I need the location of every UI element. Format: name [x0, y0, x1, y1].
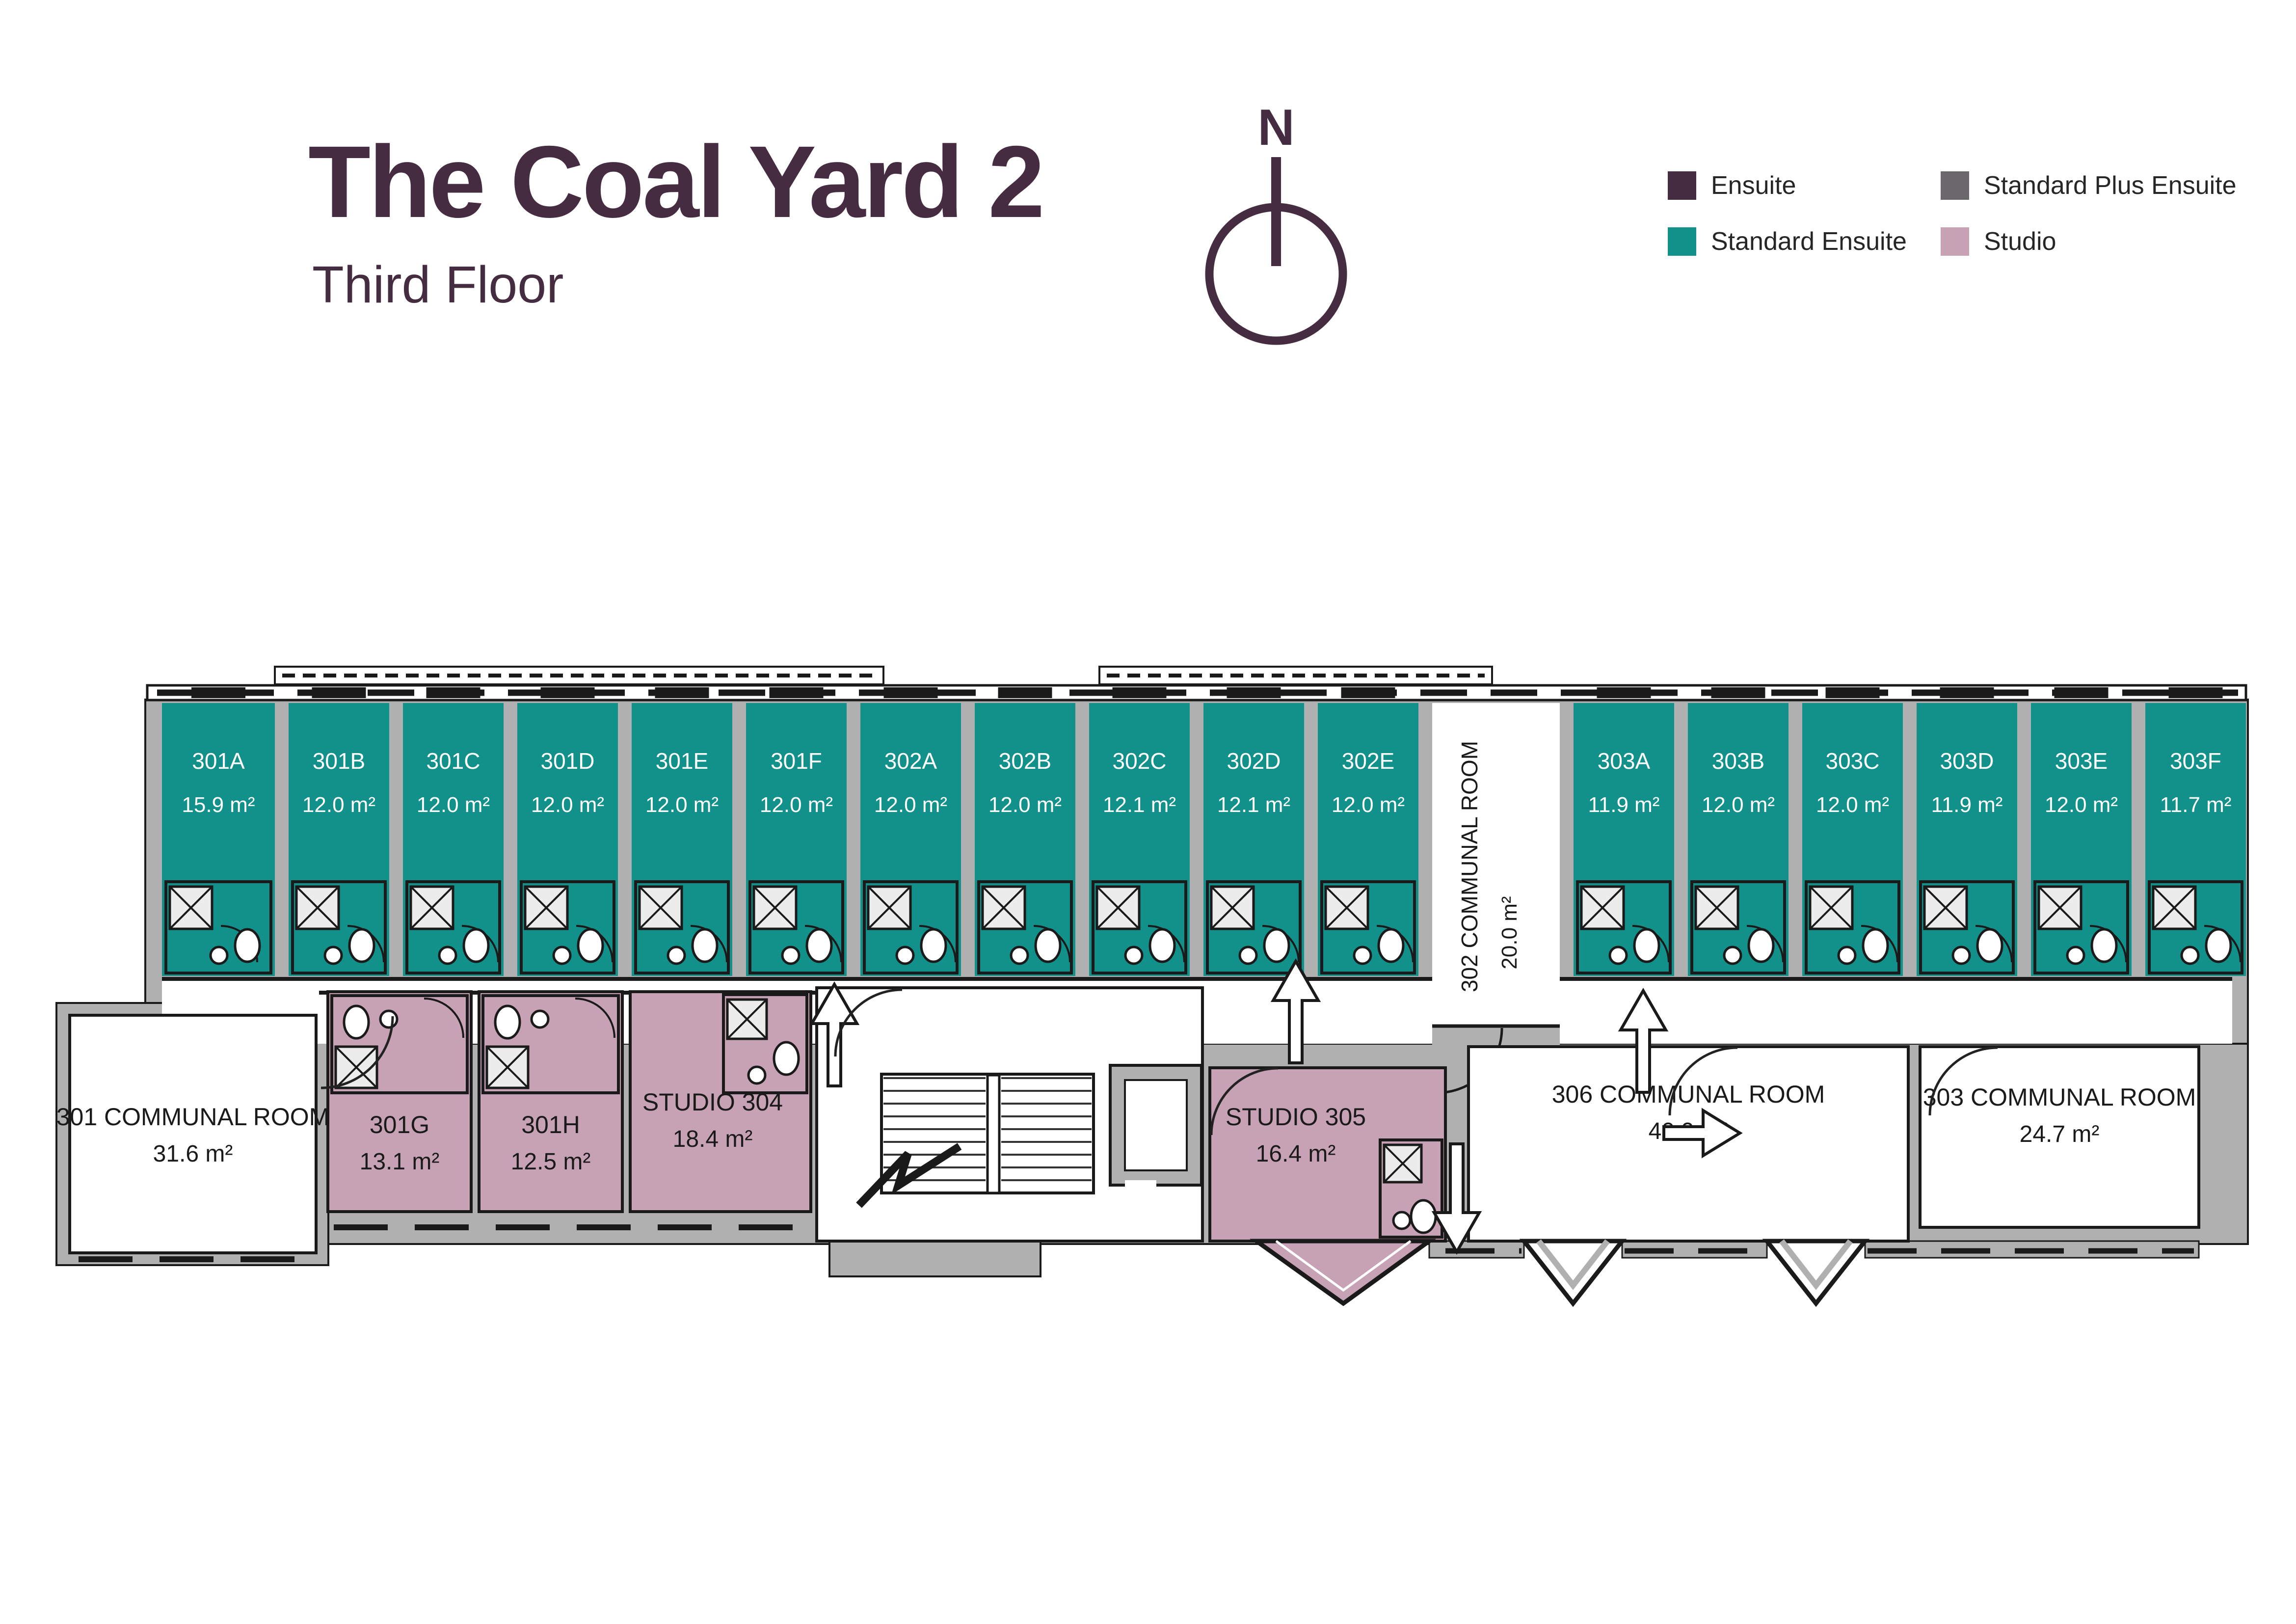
- room-fill: [746, 703, 847, 976]
- window-frame: [1341, 687, 1395, 698]
- room-302D: 302D12.1 m²: [1203, 687, 1304, 976]
- sink-icon: [554, 947, 570, 964]
- room-302E: 302E12.0 m²: [1318, 687, 1418, 976]
- room-id: 301G: [370, 1111, 429, 1138]
- room-fill: [1089, 703, 1190, 976]
- room-id: 302B: [999, 748, 1051, 774]
- room-fill: [1688, 703, 1789, 976]
- room-303F: 303F11.7 m²: [2145, 687, 2246, 976]
- window-frame: [427, 687, 481, 698]
- room-303A: 303A11.9 m²: [1574, 687, 1674, 976]
- room-id: 301D: [541, 748, 595, 774]
- room-area: 11.9 m²: [1588, 793, 1660, 817]
- room-id: 303D: [1940, 748, 1994, 774]
- room-id: 303C: [1826, 748, 1880, 774]
- legend-item-standard-plus-ensuite: Standard Plus Ensuite: [1941, 171, 2237, 200]
- sink-icon: [380, 1011, 397, 1028]
- room-id: 303F: [2170, 748, 2221, 774]
- legend-label: Ensuite: [1711, 171, 1796, 200]
- stair-rail: [988, 1075, 999, 1193]
- room-302B: 302B12.0 m²: [975, 687, 1075, 976]
- room-id: 301 COMMUNAL ROOM: [56, 1103, 330, 1131]
- room-area: 12.0 m²: [417, 793, 490, 817]
- window-frame: [1940, 687, 1994, 698]
- toilet-icon: [1977, 929, 2002, 962]
- room-area: 13.1 m²: [360, 1149, 440, 1175]
- toilet-icon: [235, 929, 260, 962]
- toilet-icon: [1379, 929, 1403, 962]
- room-area: 12.0 m²: [2045, 793, 2118, 817]
- toilet-icon: [495, 1006, 520, 1038]
- room-area: 12.0 m²: [645, 793, 719, 817]
- sink-icon: [439, 947, 456, 964]
- room-302C: 302C12.1 m²: [1089, 687, 1190, 976]
- room-301E: 301E12.0 m²: [632, 687, 732, 976]
- room-area: 12.0 m²: [1702, 793, 1775, 817]
- room-fill: [860, 703, 961, 976]
- studio-swatch-icon: [1941, 227, 1969, 256]
- room-id: 302E: [1342, 748, 1394, 774]
- window-frame: [1826, 687, 1880, 698]
- room-301A: 301A15.9 m²: [162, 687, 275, 976]
- room-id: 302 COMMUNAL ROOM: [1457, 741, 1482, 992]
- window-frame: [2055, 687, 2109, 698]
- room-fill: [1432, 703, 1560, 1026]
- legend-item-studio: Studio: [1941, 227, 2237, 256]
- room-fill: [1203, 703, 1304, 976]
- room-area: 12.1 m²: [1217, 793, 1290, 817]
- room-301B: 301B12.0 m²: [289, 687, 389, 976]
- legend-label: Standard Plus Ensuite: [1984, 171, 2237, 200]
- room-area: 12.0 m²: [1816, 793, 1889, 817]
- toilet-icon: [921, 929, 946, 962]
- sink-icon: [782, 947, 799, 964]
- window-frame: [1711, 687, 1765, 698]
- window-frame: [1227, 687, 1281, 698]
- room-id: 301C: [427, 748, 481, 774]
- room-area: 20.0 m²: [1497, 896, 1522, 969]
- sink-icon: [211, 947, 227, 964]
- room-fill: [2031, 703, 2132, 976]
- room-area: 24.7 m²: [2020, 1121, 2100, 1147]
- room-302-COMMUNAL-ROOM: 302 COMMUNAL ROOM20.0 m²: [1432, 703, 1560, 1093]
- room-area: 12.1 m²: [1103, 793, 1176, 817]
- toilet-icon: [349, 929, 374, 962]
- toilet-icon: [1264, 929, 1289, 962]
- toilet-icon: [2092, 929, 2116, 962]
- room-area: 12.0 m²: [988, 793, 1062, 817]
- room-area: 11.7 m²: [2160, 793, 2232, 817]
- toilet-icon: [1036, 929, 1060, 962]
- sink-icon: [1839, 947, 1855, 964]
- sink-icon: [532, 1011, 548, 1028]
- room-303-COMMUNAL-ROOM: 303 COMMUNAL ROOM24.7 m²: [1920, 1047, 2199, 1227]
- room-302A: 302A12.0 m²: [860, 687, 961, 976]
- standard-plus-ensuite-swatch-icon: [1941, 171, 1969, 200]
- toilet-icon: [1634, 929, 1659, 962]
- lift-car: [1125, 1080, 1187, 1170]
- legend: Ensuite Standard Plus Ensuite Standard E…: [1668, 171, 2237, 256]
- window-frame: [1113, 687, 1167, 698]
- toilet-icon: [464, 929, 488, 962]
- page-subtitle: Third Floor: [312, 255, 563, 315]
- north-compass-icon: N: [1192, 83, 1361, 349]
- window-frame: [541, 687, 595, 698]
- room-fill: [1802, 703, 1903, 976]
- room-303C: 303C12.0 m²: [1802, 687, 1903, 976]
- sink-icon: [1724, 947, 1741, 964]
- window-frame: [312, 687, 366, 698]
- bay-window: [1256, 1241, 1429, 1303]
- room-area: 16.4 m²: [1256, 1141, 1336, 1167]
- room-fill: [2145, 703, 2246, 976]
- toilet-icon: [2206, 929, 2231, 962]
- room-area: 12.0 m²: [302, 793, 375, 817]
- room-area: 12.5 m²: [511, 1149, 591, 1175]
- lift-door-opening: [1125, 1180, 1156, 1187]
- sink-icon: [1011, 947, 1028, 964]
- room-id: 301A: [192, 748, 245, 774]
- sink-icon: [325, 947, 342, 964]
- room-301F: 301F12.0 m²: [746, 687, 847, 976]
- room-south-wall: [1432, 1026, 1560, 1046]
- bay-window: [1767, 1241, 1865, 1303]
- room-id: 303 COMMUNAL ROOM: [1923, 1083, 2196, 1111]
- room-303E: 303E12.0 m²: [2031, 687, 2132, 976]
- legend-item-ensuite: Ensuite: [1668, 171, 1941, 200]
- room-id: 303E: [2055, 748, 2108, 774]
- window-frame: [655, 687, 709, 698]
- room-fill: [632, 703, 732, 976]
- room-area: 15.9 m²: [182, 793, 255, 817]
- sink-icon: [748, 1067, 765, 1083]
- room-301D: 301D12.0 m²: [517, 687, 618, 976]
- room-id: 306 COMMUNAL ROOM: [1552, 1081, 1825, 1108]
- room-fill: [517, 703, 618, 976]
- sink-icon: [2067, 947, 2084, 964]
- room-STUDIO-304: STUDIO 30418.4 m²: [630, 992, 811, 1212]
- toilet-icon: [578, 929, 603, 962]
- room-id: 303B: [1712, 748, 1764, 774]
- compass-north-label: N: [1257, 99, 1294, 156]
- room-id: 301E: [656, 748, 708, 774]
- toilet-icon: [807, 929, 831, 962]
- toilet-icon: [1863, 929, 1888, 962]
- room-id: 302A: [884, 748, 937, 774]
- window-frame: [998, 687, 1052, 698]
- room-fill: [403, 703, 504, 976]
- room-301-COMMUNAL-ROOM: 301 COMMUNAL ROOM31.6 m²: [56, 1015, 330, 1253]
- room-area: 11.9 m²: [1931, 793, 2003, 817]
- room-303D: 303D11.9 m²: [1917, 687, 2017, 976]
- sink-icon: [897, 947, 913, 964]
- room-fill: [1318, 703, 1418, 976]
- room-301C: 301C12.0 m²: [403, 687, 504, 976]
- sink-icon: [668, 947, 685, 964]
- room-area: 31.6 m²: [153, 1141, 233, 1167]
- room-id: 301F: [771, 748, 822, 774]
- page-title: The Coal Yard 2: [308, 124, 1043, 241]
- toilet-icon: [1411, 1200, 1436, 1233]
- room-id: 301B: [313, 748, 365, 774]
- bay-window: [1524, 1241, 1622, 1303]
- room-id: 303A: [1598, 748, 1651, 774]
- window-frame: [884, 687, 938, 698]
- sink-icon: [1393, 1212, 1410, 1229]
- room-303B: 303B12.0 m²: [1688, 687, 1789, 976]
- sink-icon: [1240, 947, 1256, 964]
- toilet-icon: [693, 929, 717, 962]
- room-id: 301H: [521, 1111, 580, 1138]
- room-area: 18.4 m²: [673, 1126, 753, 1152]
- room-id: 302D: [1227, 748, 1281, 774]
- window-frame: [770, 687, 824, 698]
- room-fill: [289, 703, 389, 976]
- toilet-icon: [1749, 929, 1773, 962]
- sink-icon: [1953, 947, 1970, 964]
- sink-icon: [1125, 947, 1142, 964]
- standard-ensuite-swatch-icon: [1668, 227, 1696, 256]
- room-id: STUDIO 305: [1226, 1103, 1366, 1131]
- room-fill: [1917, 703, 2017, 976]
- legend-label: Standard Ensuite: [1711, 227, 1907, 256]
- toilet-icon: [1150, 929, 1175, 962]
- ensuite-swatch-icon: [1668, 171, 1696, 200]
- room-306-COMMUNAL-ROOM: 306 COMMUNAL ROOM40.9 m²: [1468, 1047, 1908, 1241]
- room-area: 12.0 m²: [1332, 793, 1405, 817]
- sink-icon: [2182, 947, 2198, 964]
- window-frame: [1597, 687, 1651, 698]
- toilet-icon: [344, 1006, 369, 1038]
- room-fill: [1574, 703, 1674, 976]
- room-fill: [975, 703, 1075, 976]
- window-frame: [2169, 687, 2223, 698]
- entrance-porch: [829, 1241, 1041, 1276]
- room-id: 302C: [1113, 748, 1167, 774]
- window-frame: [191, 687, 245, 698]
- room-fill: [70, 1015, 316, 1253]
- room-area: 12.0 m²: [760, 793, 833, 817]
- room-area: 12.0 m²: [874, 793, 947, 817]
- sink-icon: [1354, 947, 1371, 964]
- room-area: 12.0 m²: [531, 793, 604, 817]
- toilet-icon: [774, 1042, 799, 1075]
- sink-icon: [1610, 947, 1627, 964]
- legend-item-standard-ensuite: Standard Ensuite: [1668, 227, 1941, 256]
- legend-label: Studio: [1984, 227, 2056, 256]
